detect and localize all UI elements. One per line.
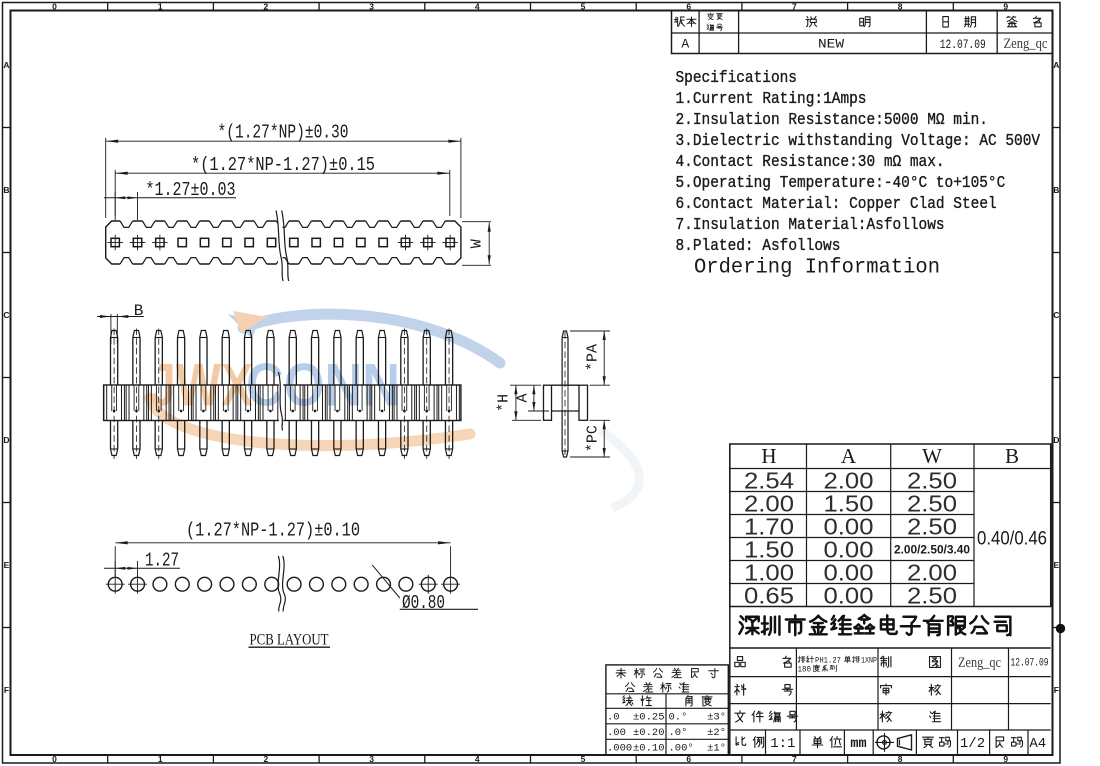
svg-text:F: F (4, 685, 9, 695)
svg-text:3: 3 (369, 1, 374, 11)
svg-text:A: A (1053, 60, 1059, 70)
svg-text:2.00/2.50/3.40: 2.00/2.50/3.40 (894, 545, 970, 557)
svg-text:A: A (3, 60, 9, 70)
svg-text:PH1.27: PH1.27 (815, 656, 841, 666)
svg-text:7.Insulation Material:Asfollow: 7.Insulation Material:Asfollows (676, 216, 945, 235)
svg-text:0: 0 (52, 754, 57, 764)
svg-text:6.Contact Material: Copper Cla: 6.Contact Material: Copper Clad Steel (676, 195, 997, 214)
svg-text:W: W (469, 239, 486, 248)
svg-text:1XNP: 1XNP (861, 656, 877, 666)
svg-text:.00°: .00° (669, 743, 694, 755)
svg-text:NEW: NEW (818, 37, 844, 52)
svg-text:A: A (515, 393, 532, 402)
svg-text:A4: A4 (1029, 736, 1046, 752)
svg-text:1: 1 (158, 1, 163, 11)
svg-text:PCB LAYOUT: PCB LAYOUT (250, 632, 329, 649)
svg-text:.0°: .0° (669, 727, 688, 739)
svg-text:*PA: *PA (585, 344, 602, 371)
svg-text:B: B (3, 185, 9, 195)
svg-text:1:1: 1:1 (770, 736, 795, 752)
svg-text:Zeng_qc: Zeng_qc (1004, 36, 1048, 52)
svg-text:*PC: *PC (585, 425, 602, 452)
svg-text:Ø0.80: Ø0.80 (402, 592, 445, 614)
svg-text:E: E (4, 560, 10, 570)
svg-text:12.07.09: 12.07.09 (940, 37, 986, 52)
svg-text:A: A (841, 444, 857, 468)
svg-text:.000: .000 (607, 743, 632, 755)
svg-text:*(1.27*NP-1.27)±0.15: *(1.27*NP-1.27)±0.15 (191, 154, 375, 176)
svg-text:12.07.09: 12.07.09 (1011, 658, 1049, 670)
svg-text:8: 8 (898, 754, 903, 764)
svg-text:.00: .00 (607, 727, 626, 739)
svg-text:5.Operating Temperature:-40°C: 5.Operating Temperature:-40°C to+105°C (676, 174, 1006, 193)
svg-text:4: 4 (475, 1, 480, 11)
svg-text:C: C (3, 310, 9, 320)
svg-text:2.50: 2.50 (907, 582, 957, 608)
svg-text:mm: mm (850, 737, 866, 752)
svg-text:*1.27±0.03: *1.27±0.03 (146, 179, 236, 201)
svg-text:B: B (1053, 185, 1059, 195)
svg-text:2: 2 (264, 754, 269, 764)
svg-text:*(1.27*NP)±0.30: *(1.27*NP)±0.30 (218, 122, 349, 144)
svg-text:1/2: 1/2 (960, 736, 985, 752)
svg-text:0: 0 (52, 1, 57, 11)
svg-text:B: B (1005, 444, 1019, 468)
svg-text:H: H (761, 444, 776, 468)
svg-text:1.Current Rating:1Amps: 1.Current Rating:1Amps (676, 90, 867, 109)
svg-text:±1°: ±1° (707, 743, 726, 755)
svg-text:Ordering Information: Ordering Information (694, 257, 940, 280)
svg-text:*H: *H (496, 394, 513, 412)
svg-text:1: 1 (158, 754, 163, 764)
svg-text:A: A (681, 37, 689, 52)
svg-text:D: D (3, 435, 9, 445)
svg-text:±0.25: ±0.25 (633, 712, 665, 724)
svg-text:Zeng_qc: Zeng_qc (958, 655, 1001, 671)
svg-text:D: D (1053, 435, 1059, 445)
svg-text:8.Plated: Asfollows: 8.Plated: Asfollows (676, 237, 841, 256)
svg-text:W: W (922, 444, 942, 468)
svg-text:5: 5 (581, 754, 586, 764)
svg-text:2.50: 2.50 (907, 513, 957, 539)
svg-text:3.Dielectric withstanding Volt: 3.Dielectric withstanding Voltage: AC 50… (676, 132, 1041, 151)
svg-text:B: B (134, 302, 144, 320)
svg-text:4.Contact Resistance:30 mΩ max: 4.Contact Resistance:30 mΩ max. (676, 153, 945, 172)
svg-text:7: 7 (792, 754, 797, 764)
svg-text:±0.10: ±0.10 (633, 743, 665, 755)
svg-text:1.27: 1.27 (145, 550, 179, 572)
svg-text:±2°: ±2° (707, 727, 726, 739)
svg-text:E: E (1053, 560, 1059, 570)
svg-text:.0: .0 (607, 712, 620, 724)
svg-text:±3°: ±3° (707, 712, 726, 724)
svg-text:0.40/0.46: 0.40/0.46 (977, 528, 1047, 550)
svg-text:0.65: 0.65 (744, 582, 794, 608)
svg-text:±0.20: ±0.20 (633, 727, 665, 739)
svg-text:4: 4 (475, 754, 480, 764)
svg-text:9: 9 (1003, 754, 1008, 764)
svg-text:0.°: 0.° (669, 712, 688, 724)
svg-text:2.Insulation Resistance:5000 M: 2.Insulation Resistance:5000 MΩ min. (676, 111, 989, 130)
svg-text:3: 3 (369, 754, 374, 764)
svg-text:Specifications: Specifications (676, 69, 798, 88)
svg-text:C: C (1053, 310, 1059, 320)
svg-text:F: F (1054, 685, 1059, 695)
svg-text:180: 180 (798, 665, 812, 675)
svg-text:0.00: 0.00 (824, 582, 874, 608)
svg-text:5: 5 (581, 1, 586, 11)
svg-text:(1.27*NP-1.27)±0.10: (1.27*NP-1.27)±0.10 (186, 520, 360, 542)
svg-text:2: 2 (264, 1, 269, 11)
